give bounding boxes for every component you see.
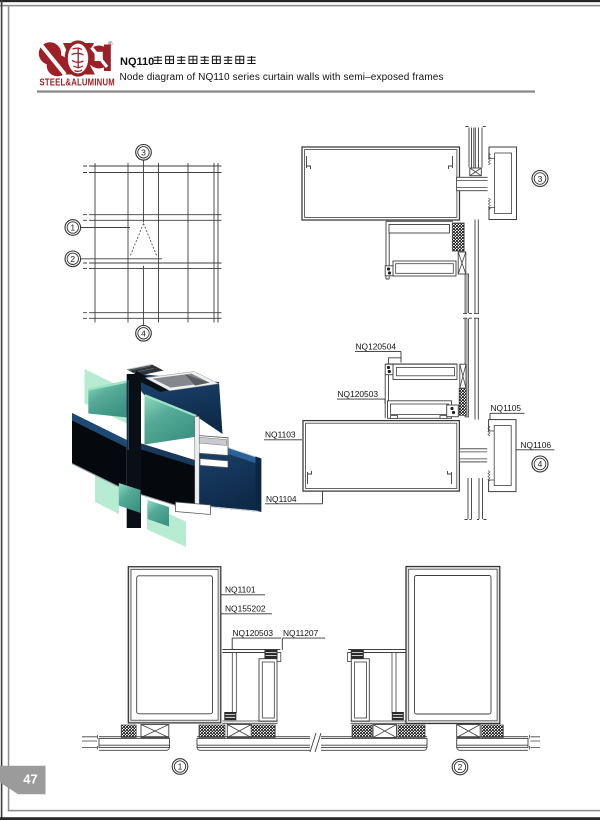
svg-text:2: 2 <box>70 254 75 264</box>
svg-text:Node diagram of NQ110 series c: Node diagram of NQ110 series curtain wal… <box>120 72 444 83</box>
svg-text:NQ120504: NQ120504 <box>356 341 397 351</box>
svg-text:NQ155202: NQ155202 <box>225 604 266 614</box>
svg-text:1: 1 <box>70 223 75 233</box>
svg-text:2: 2 <box>458 762 463 772</box>
svg-text:1: 1 <box>178 762 183 772</box>
svg-text:NQ1106: NQ1106 <box>521 440 552 450</box>
svg-text:4: 4 <box>538 459 543 469</box>
svg-text:NQ1104: NQ1104 <box>266 494 297 504</box>
svg-text:4: 4 <box>141 329 146 339</box>
svg-text:NQ11207: NQ11207 <box>283 628 319 638</box>
svg-text:NQ1105: NQ1105 <box>491 403 522 413</box>
svg-text:NQ120503: NQ120503 <box>338 389 379 399</box>
svg-text:NQ120503: NQ120503 <box>233 628 274 638</box>
svg-text:NQ1103: NQ1103 <box>265 430 296 440</box>
svg-text:3: 3 <box>538 174 543 184</box>
svg-text:NQ110: NQ110 <box>120 56 154 68</box>
svg-text:3: 3 <box>141 148 146 158</box>
svg-text:STEEL&ALUMINUM: STEEL&ALUMINUM <box>40 76 115 87</box>
svg-text:NQ1101: NQ1101 <box>225 585 256 595</box>
svg-text:®: ® <box>108 41 113 48</box>
svg-text:47: 47 <box>23 772 37 787</box>
